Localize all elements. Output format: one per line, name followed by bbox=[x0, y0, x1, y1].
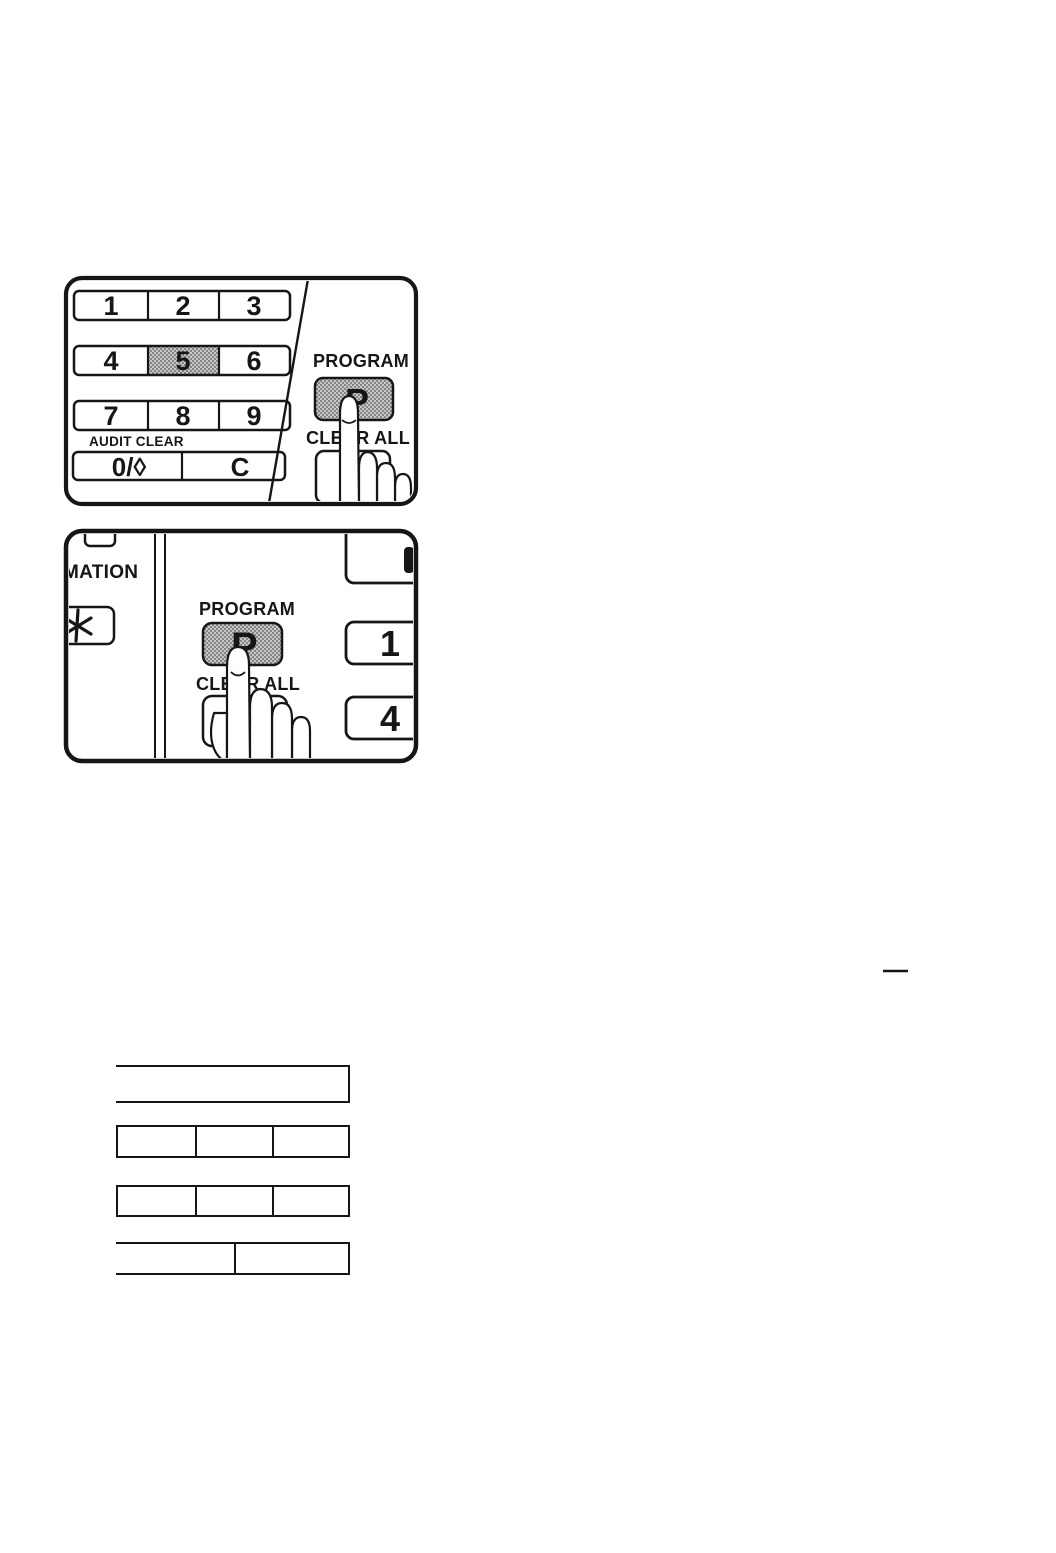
keypad-panel-illustration: 1 2 3 4 5 6 7 8 9 AUDIT CLEAR 0/◊ C bbox=[66, 278, 416, 506]
panel-diagonal-separator bbox=[269, 279, 308, 503]
key-1: 1 bbox=[103, 291, 118, 321]
hand-finger bbox=[359, 452, 377, 506]
audit-clear-label: AUDIT CLEAR bbox=[89, 434, 184, 449]
scan-ink-blob bbox=[404, 547, 414, 573]
key-0-diamond: 0/◊ bbox=[112, 452, 147, 482]
key-c: C bbox=[231, 452, 250, 482]
hand-finger bbox=[377, 463, 395, 506]
program-closeup-illustration: MATION 1 4 PROGRAM P CLEAR ALL bbox=[56, 522, 422, 762]
asterisk-icon bbox=[65, 610, 91, 641]
key-9: 9 bbox=[246, 401, 261, 431]
form-row-3 bbox=[117, 1186, 349, 1216]
key-6: 6 bbox=[246, 346, 261, 376]
form-row-1 bbox=[116, 1066, 349, 1102]
information-label-partial: MATION bbox=[63, 562, 138, 583]
side-key-1-digit: 1 bbox=[380, 623, 400, 664]
hand-finger bbox=[250, 689, 272, 762]
hand-finger bbox=[292, 717, 310, 762]
program-label: PROGRAM bbox=[199, 599, 295, 619]
key-3: 3 bbox=[246, 291, 261, 321]
hand-finger bbox=[272, 703, 292, 762]
key-8: 8 bbox=[175, 401, 190, 431]
blank-form-table bbox=[116, 1066, 349, 1274]
form-row-2 bbox=[117, 1126, 349, 1157]
manual-page: 1 2 3 4 5 6 7 8 9 AUDIT CLEAR 0/◊ C bbox=[0, 0, 1056, 1553]
key-2: 2 bbox=[175, 291, 190, 321]
keypad-row-0c bbox=[73, 452, 285, 480]
partial-key-top-left bbox=[85, 522, 115, 546]
key-7: 7 bbox=[103, 401, 118, 431]
side-key-4-digit: 4 bbox=[380, 698, 400, 739]
hand-index-finger bbox=[227, 647, 250, 762]
hand-palm-edge bbox=[211, 713, 227, 762]
hand-index-finger bbox=[340, 396, 359, 506]
page-canvas: 1 2 3 4 5 6 7 8 9 AUDIT CLEAR 0/◊ C bbox=[0, 0, 1056, 1553]
key-4: 4 bbox=[103, 346, 118, 376]
key-5: 5 bbox=[175, 346, 190, 376]
program-label: PROGRAM bbox=[313, 351, 409, 371]
form-row-4 bbox=[116, 1243, 349, 1274]
